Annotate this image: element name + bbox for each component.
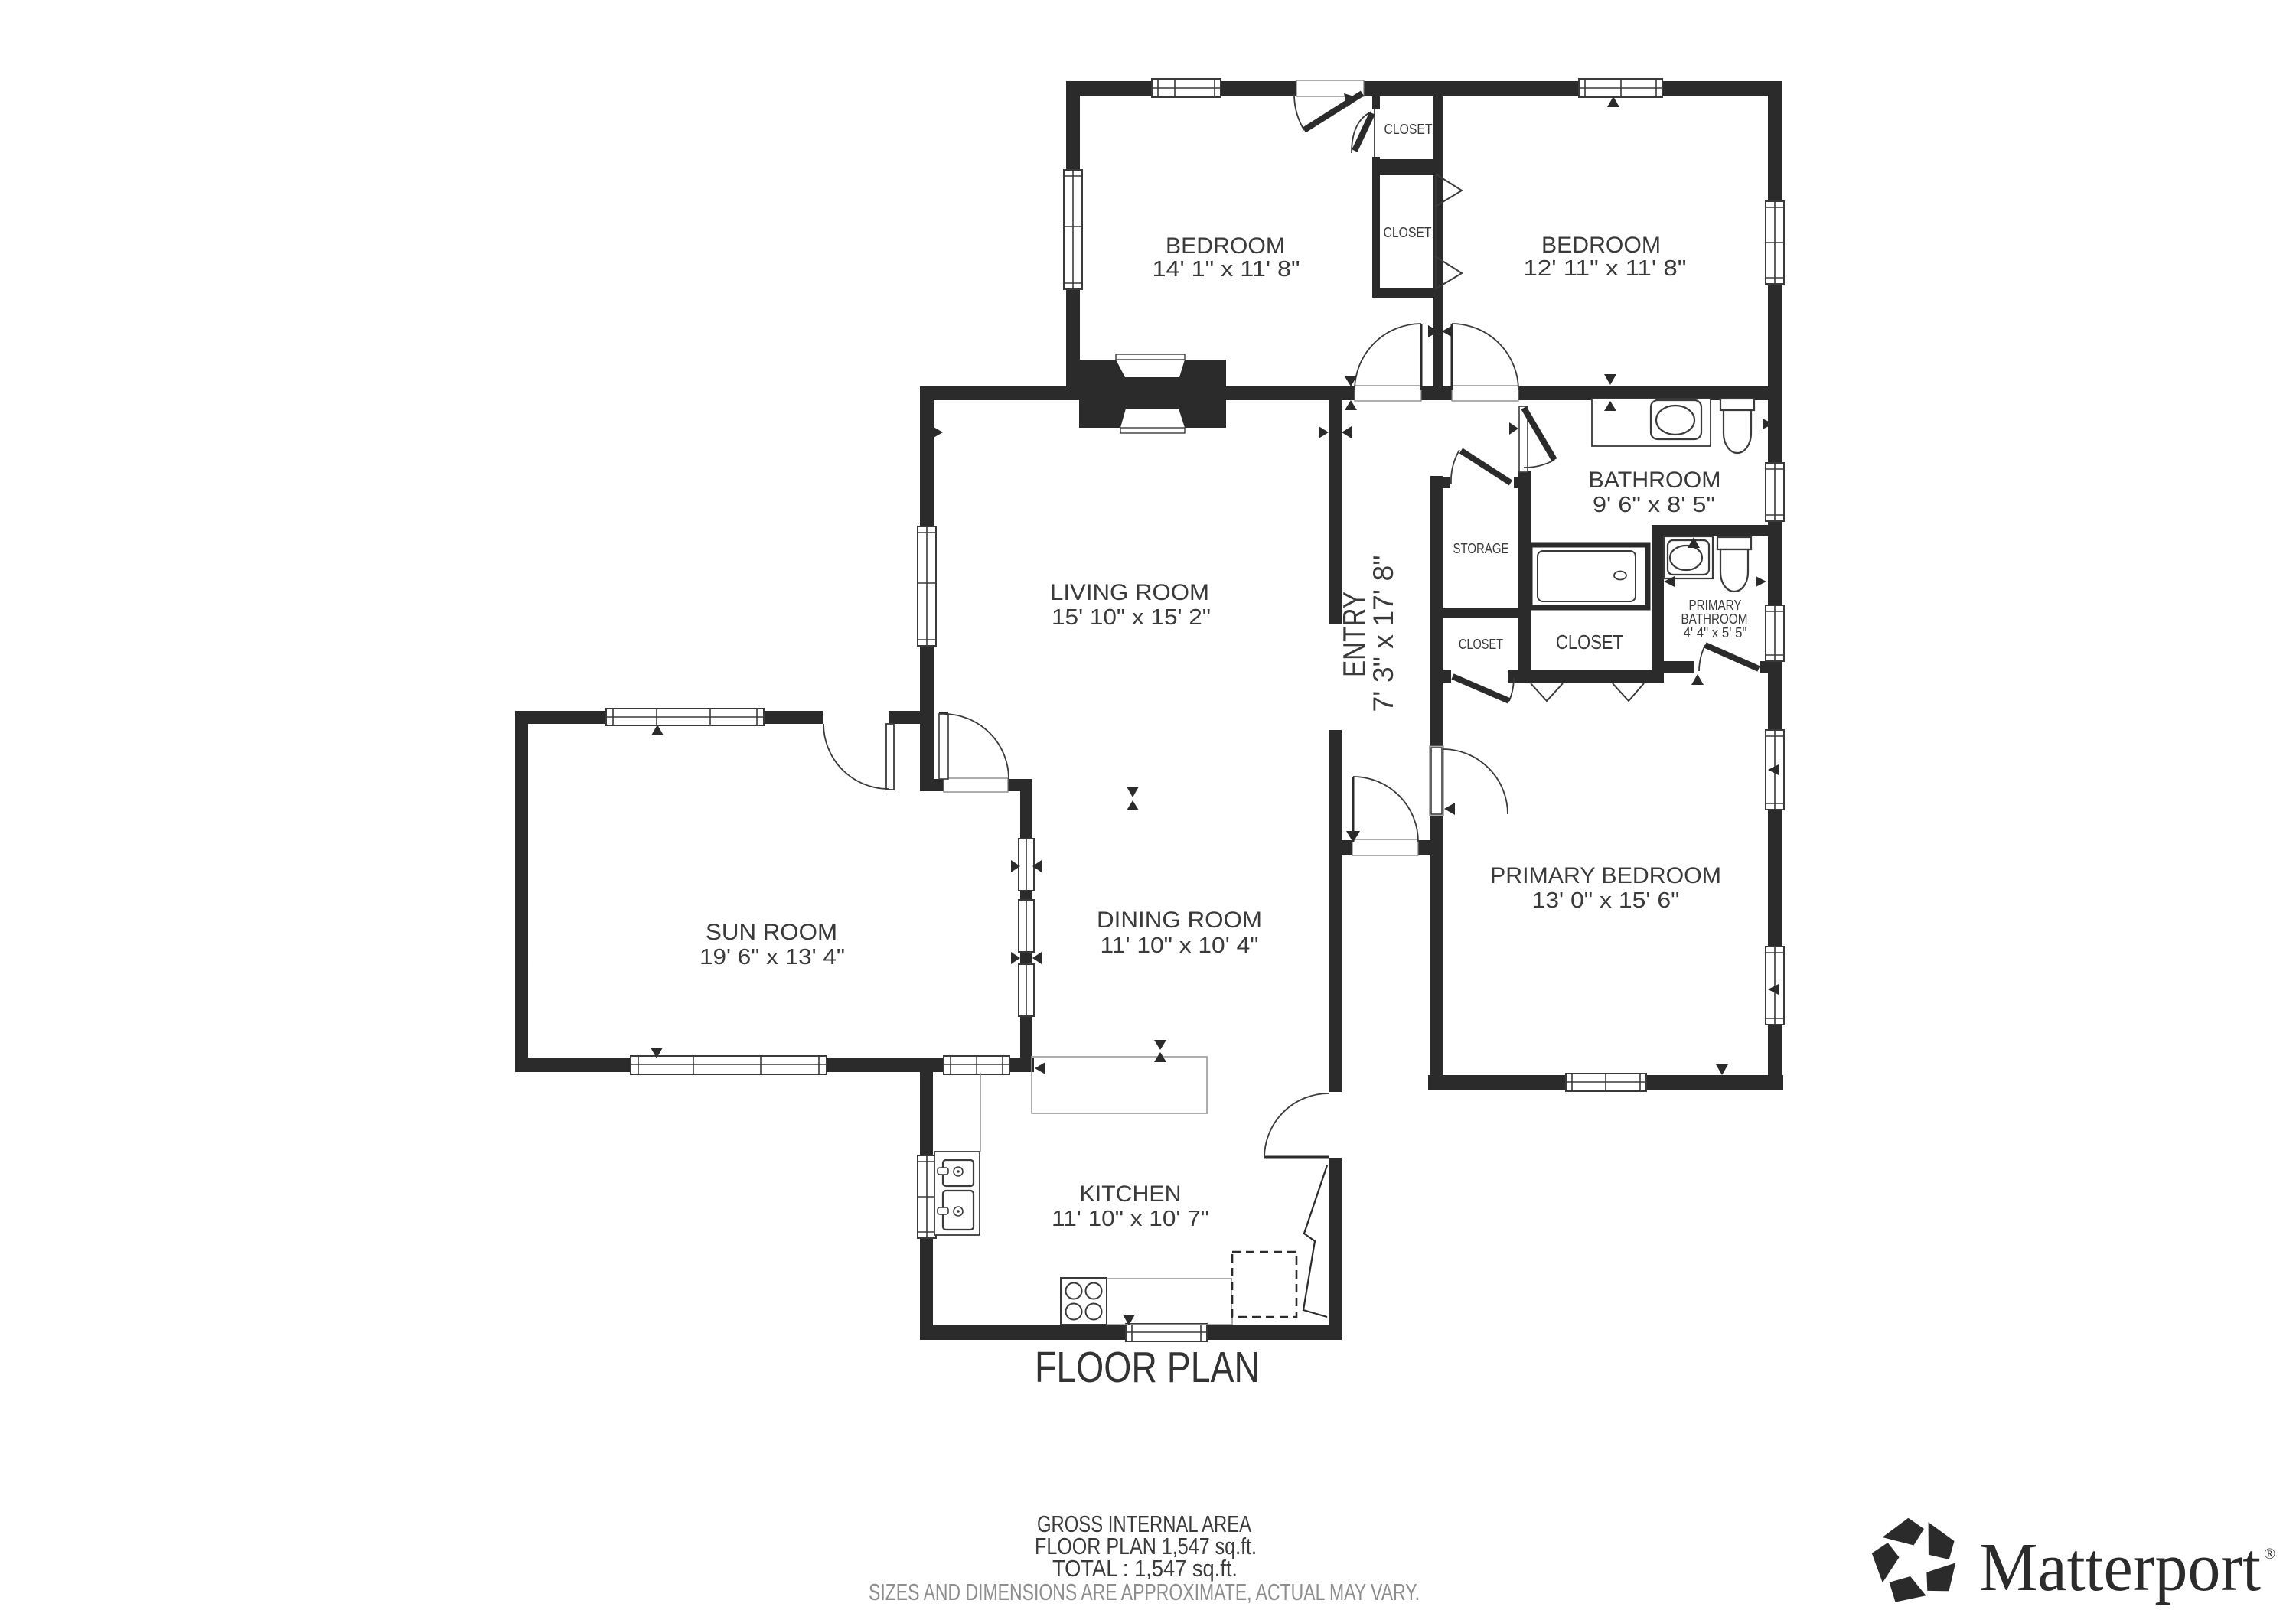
svg-text:11' 10" x 10' 7": 11' 10" x 10' 7" — [1052, 1207, 1209, 1231]
svg-text:®: ® — [2264, 1546, 2275, 1563]
svg-text:CLOSET: CLOSET — [1556, 631, 1623, 653]
svg-text:11' 10" x 10' 4": 11' 10" x 10' 4" — [1101, 934, 1259, 958]
svg-text:BATHROOM: BATHROOM — [1681, 611, 1748, 627]
svg-text:CLOSET: CLOSET — [1384, 122, 1433, 137]
svg-text:DINING ROOM: DINING ROOM — [1097, 908, 1262, 933]
svg-text:CLOSET: CLOSET — [1384, 225, 1432, 240]
svg-text:BEDROOM: BEDROOM — [1541, 233, 1661, 258]
svg-text:PRIMARY: PRIMARY — [1689, 598, 1742, 613]
svg-text:15' 10" x 15' 2": 15' 10" x 15' 2" — [1052, 605, 1211, 630]
svg-text:KITCHEN: KITCHEN — [1080, 1181, 1182, 1207]
svg-text:STORAGE: STORAGE — [1453, 541, 1509, 556]
svg-text:Matterport: Matterport — [1979, 1530, 2261, 1605]
svg-text:PRIMARY BEDROOM: PRIMARY BEDROOM — [1490, 863, 1721, 888]
svg-text:TOTAL : 1,547 sq.ft.: TOTAL : 1,547 sq.ft. — [1052, 1555, 1238, 1582]
svg-text:4' 4" x 5' 5": 4' 4" x 5' 5" — [1684, 625, 1747, 640]
svg-text:14' 1" x 11' 8": 14' 1" x 11' 8" — [1153, 257, 1300, 282]
svg-text:BATHROOM: BATHROOM — [1589, 468, 1721, 493]
svg-text:SIZES AND DIMENSIONS ARE APPRO: SIZES AND DIMENSIONS ARE APPROXIMATE, AC… — [869, 1579, 1420, 1605]
svg-text:LIVING ROOM: LIVING ROOM — [1050, 580, 1209, 605]
svg-text:7' 3" x 17' 8": 7' 3" x 17' 8" — [1368, 556, 1399, 712]
svg-text:SUN ROOM: SUN ROOM — [706, 920, 837, 945]
svg-text:ENTRY: ENTRY — [1336, 592, 1372, 677]
svg-text:19' 6" x 13' 4": 19' 6" x 13' 4" — [700, 945, 845, 970]
svg-text:9' 6" x 8' 5": 9' 6" x 8' 5" — [1593, 493, 1715, 517]
svg-text:CLOSET: CLOSET — [1459, 637, 1503, 652]
svg-text:13' 0" x 15' 6": 13' 0" x 15' 6" — [1532, 888, 1680, 913]
svg-text:BEDROOM: BEDROOM — [1166, 233, 1285, 259]
svg-text:FLOOR PLAN: FLOOR PLAN — [1035, 1343, 1260, 1392]
svg-text:12' 11" x 11' 8": 12' 11" x 11' 8" — [1524, 256, 1687, 281]
